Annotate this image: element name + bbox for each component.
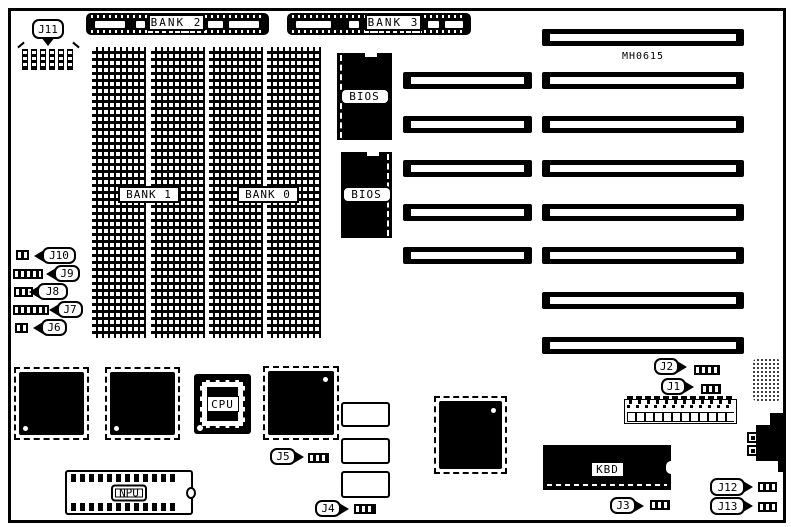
motherboard-diagram: BANK 2 BANK 3 J11 BANK 1 BANK 0 BIOS BIO… (0, 0, 791, 527)
jumper-label-j3: J3 (610, 497, 636, 514)
crosshatch-component (752, 358, 781, 402)
jumper-pins-j7 (13, 305, 49, 315)
jumper-label-j7: J7 (57, 301, 83, 318)
dip-connector-j11 (22, 49, 75, 71)
isa-slot-16bit (542, 29, 744, 46)
jumper-label-j6: J6 (41, 319, 67, 336)
jumper-pins-j12 (758, 482, 777, 492)
bios-chip-top: BIOS (337, 53, 392, 140)
simm-socket-bank3: BANK 3 (287, 13, 471, 35)
jumper-label-j13: J13 (710, 497, 745, 515)
jumper-label-j5: J5 (270, 448, 296, 465)
isa-slot-extension (403, 160, 532, 177)
dip-switch-bank (624, 399, 737, 424)
isa-slot-extension (403, 116, 532, 133)
keyboard-connector (756, 425, 786, 461)
kbd-label: KBD (591, 462, 624, 477)
bank0-label: BANK 0 (237, 186, 299, 203)
cpu-socket: CPU (194, 374, 251, 434)
isa-slot-16bit (542, 337, 744, 354)
bios-top-label: BIOS (340, 88, 390, 105)
jumper-pins-j2 (694, 365, 720, 375)
bank1-label: BANK 1 (118, 186, 180, 203)
isa-slot-16bit (542, 247, 744, 264)
connector-tab (747, 445, 758, 456)
npu-label: NPU (111, 484, 147, 501)
jumper-pins-j6 (15, 323, 28, 333)
isa-slot-16bit (542, 292, 744, 309)
isa-slot-extension (403, 247, 532, 264)
isa-slot-extension (403, 72, 532, 89)
jumper-label-j11: J11 (32, 19, 64, 39)
jumper-label-j1: J1 (661, 378, 686, 395)
isa-slot-16bit (542, 160, 744, 177)
keyboard-controller-chip: KBD (543, 445, 671, 490)
board-part-number: MH0615 (608, 51, 678, 62)
isa-slot-extension (403, 204, 532, 221)
oscillator-1 (341, 402, 390, 427)
jumper-label-j2: J2 (654, 358, 679, 375)
jumper-label-j12: J12 (710, 478, 745, 496)
jumper-pins-j3 (650, 500, 670, 510)
jumper-label-j9: J9 (54, 265, 80, 282)
cpu-label: CPU (207, 396, 239, 412)
bios-chip-bottom: BIOS (341, 152, 392, 238)
jumper-pins-j5 (308, 453, 329, 463)
bank2-label: BANK 2 (148, 14, 205, 31)
bios-bottom-label: BIOS (342, 186, 392, 203)
jumper-pins-j10 (16, 250, 29, 260)
jumper-label-j4: J4 (315, 500, 341, 517)
connector-tab (747, 432, 758, 443)
isa-slot-16bit (542, 116, 744, 133)
jumper-pins-j9 (13, 269, 43, 279)
oscillator-2 (341, 438, 390, 464)
oscillator-3 (341, 471, 390, 498)
qfp-chip-1 (19, 372, 84, 435)
simm-socket-bank2: BANK 2 (86, 13, 269, 35)
qfp-chip-3 (268, 371, 334, 435)
jumper-pins-j4 (354, 504, 376, 514)
jumper-label-j8: J8 (37, 283, 68, 300)
jumper-label-j10: J10 (42, 247, 76, 264)
npu-socket: NPU (65, 470, 193, 515)
qfp-chip-4 (439, 401, 502, 469)
qfp-chip-2 (110, 372, 175, 435)
bank3-label: BANK 3 (365, 14, 422, 31)
jumper-pins-j13 (758, 502, 777, 512)
jumper-pins-j1 (701, 384, 721, 394)
keyboard-connector (778, 461, 786, 472)
isa-slot-16bit (542, 204, 744, 221)
isa-slot-16bit (542, 72, 744, 89)
